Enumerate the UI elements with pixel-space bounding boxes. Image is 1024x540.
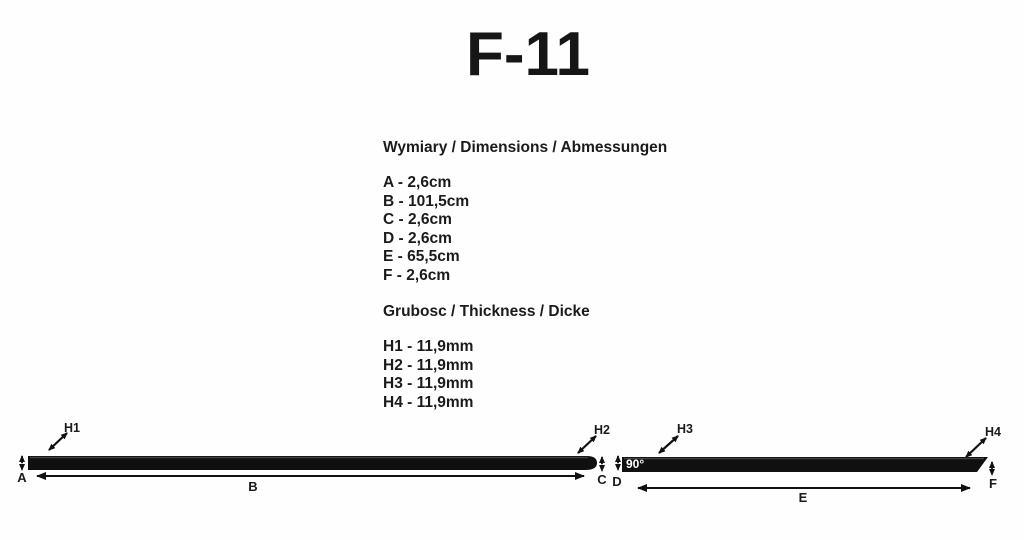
label-f: F [989, 476, 997, 491]
dimension-line: E - 65,5cm [383, 248, 703, 267]
thickness-heading: Grubosc / Thickness / Dicke [383, 303, 590, 321]
label-h3: H3 [677, 422, 693, 436]
thickness-line: H1 - 11,9mm [383, 338, 703, 357]
angle-90-label: 90° [626, 457, 644, 471]
thickness-line: H4 - 11,9mm [383, 394, 703, 413]
page-title: F-11 [32, 24, 1024, 86]
spec-sheet: F-11 Wymiary / Dimensions / Abmessungen … [0, 0, 1024, 535]
label-a: A [17, 470, 27, 485]
dimension-line: A - 2,6cm [383, 174, 703, 193]
leader-arrow-h3 [659, 436, 678, 453]
label-h1: H1 [64, 421, 80, 435]
label-h2: H2 [594, 423, 610, 437]
dimension-line: D - 2,6cm [383, 230, 703, 249]
dimension-line: C - 2,6cm [383, 211, 703, 230]
leader-arrow-h2 [578, 436, 596, 453]
leader-arrow-h4 [966, 438, 986, 457]
thickness-line: H3 - 11,9mm [383, 375, 703, 394]
dimensions-list: A - 2,6cm B - 101,5cm C - 2,6cm D - 2,6c… [383, 174, 703, 286]
leader-arrow-h1 [49, 433, 67, 450]
label-e: E [799, 490, 808, 505]
label-c: C [597, 472, 607, 487]
dimension-line: F - 2,6cm [383, 267, 703, 286]
dimensions-heading: Wymiary / Dimensions / Abmessungen [383, 139, 667, 157]
thickness-list: H1 - 11,9mm H2 - 11,9mm H3 - 11,9mm H4 -… [383, 338, 703, 412]
label-d: D [612, 474, 621, 489]
thickness-line: H2 - 11,9mm [383, 357, 703, 376]
label-h4: H4 [985, 425, 1001, 439]
dimension-line: B - 101,5cm [383, 193, 703, 212]
diagram-svg: 90° A B C D E F H1 H2 [0, 415, 1024, 535]
label-b: B [248, 479, 257, 494]
trim-strips-diagram: 90° A B C D E F H1 H2 [0, 415, 1024, 535]
